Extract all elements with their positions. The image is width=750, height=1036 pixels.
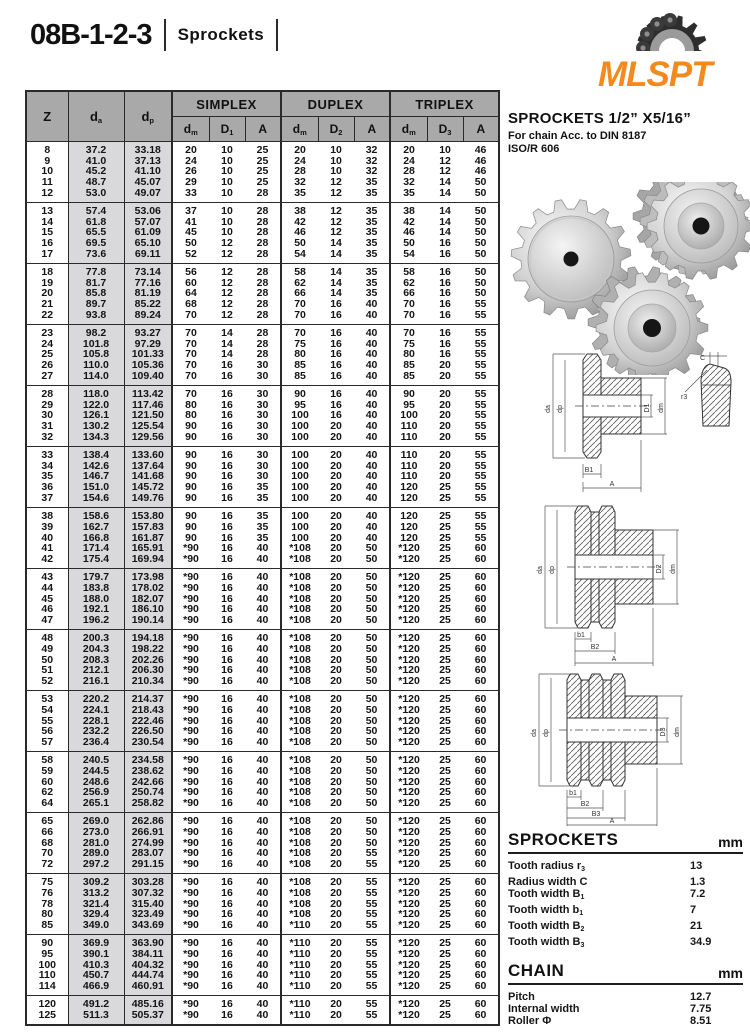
svg-text:da: da: [537, 566, 544, 574]
table-row: 54224.1218.43*901640*1082050*1202560: [26, 705, 499, 716]
svg-text:dm: dm: [670, 564, 677, 574]
table-row: 70289.0283.07*901640*1082055*1202560: [26, 848, 499, 859]
subcol-header: A: [354, 117, 390, 142]
svg-text:da: da: [531, 729, 538, 737]
brand-logo: MLSPT: [596, 4, 748, 92]
table-row: 66273.0266.91*901640*1082050*1202560: [26, 827, 499, 838]
subcol-header: D1: [209, 117, 245, 142]
table-row: 1669.565.10501228501435501650: [26, 238, 499, 249]
table-row: 1253.049.07331028351235351450: [26, 188, 499, 203]
table-row: 120491.2485.16*901640*1102055*1202560: [26, 996, 499, 1010]
table-row: 40166.8161.8790163510020401202555: [26, 533, 499, 544]
spec-row: Internal width7.75: [508, 1003, 743, 1015]
table-row: 62256.9250.74*901640*1082050*1202560: [26, 787, 499, 798]
table-row: 1565.561.09451028461235461450: [26, 227, 499, 238]
table-row: 29122.0117.46801630951640952055: [26, 400, 499, 411]
spec-row: Tooth width B221: [508, 920, 743, 936]
photo-triplex-sprocket: [633, 182, 750, 279]
chain-spec-rows: Pitch12.7Internal width7.75Roller Φ8.51: [508, 991, 743, 1027]
table-row: 1773.669.11521228541435541650: [26, 249, 499, 264]
group-header-simplex: SIMPLEX: [172, 91, 281, 117]
subcol-header: dm: [390, 117, 427, 142]
sprockets-spec-unit: mm: [718, 834, 743, 850]
table-row: 114466.9460.91*901640*1102055*1202560: [26, 981, 499, 996]
spec-row: Radius width C1.3: [508, 876, 743, 888]
svg-text:dm: dm: [674, 727, 681, 737]
chain-spec-header: CHAIN mm: [508, 961, 743, 985]
title-divider: [164, 19, 166, 51]
svg-text:B1: B1: [585, 467, 594, 474]
subcol-header: D2: [318, 117, 354, 142]
table-row: 45188.0182.07*901640*1082050*1202560: [26, 594, 499, 605]
simplex-drawing: da dp D1 dm B1 A C r3: [505, 352, 750, 494]
table-row: 100410.3404.32*901640*1102055*1202560: [26, 960, 499, 971]
catalog-page: 08B-1-2-3 Sprockets MLSPT: [0, 0, 750, 1036]
svg-text:B3: B3: [592, 811, 601, 818]
table-row: 110450.7444.74*901640*1102055*1202560: [26, 970, 499, 981]
table-row: 47196.2190.14*901640*1082050*1202560: [26, 615, 499, 630]
table-row: 65269.0262.86*901640*1082050*1202560: [26, 813, 499, 827]
subcol-header: dm: [172, 117, 209, 142]
title-divider: [276, 19, 278, 51]
svg-text:A: A: [612, 656, 617, 663]
table-row: 44183.8178.02*901640*1082050*1202560: [26, 583, 499, 594]
table-row: 78321.4315.40*901640*1082055*1202560: [26, 899, 499, 910]
table-row: 125511.3505.37*901640*1102055*1202560: [26, 1010, 499, 1025]
svg-text:A: A: [610, 481, 615, 488]
svg-text:r3: r3: [681, 394, 687, 401]
table-row: 80329.4323.49*901640*1082055*1202560: [26, 909, 499, 920]
spec-row: Tooth radius r313: [508, 860, 743, 876]
table-row: 56232.2226.50*901640*1082050*1202560: [26, 726, 499, 737]
table-row: 837.233.18201025201032201046: [26, 142, 499, 156]
table-row: 95390.1384.11*901640*1102055*1202560: [26, 949, 499, 960]
spec-row: Tooth width B17.2: [508, 888, 743, 904]
header-row-1: ZdadpSIMPLEXDUPLEXTRIPLEX: [26, 91, 499, 117]
table-row: 2085.881.19641228661435661650: [26, 288, 499, 299]
col-da-header: da: [68, 91, 124, 142]
spec-row: Pitch12.7: [508, 991, 743, 1003]
table-row: 1461.857.07411028421235421450: [26, 217, 499, 228]
col-dp-header: dp: [124, 91, 172, 142]
table-row: 48200.3194.18*901640*1082050*1202560: [26, 630, 499, 644]
table-row: 33138.4133.6090163010020401102055: [26, 447, 499, 461]
table-row: 58240.5234.58*901640*1082050*1202560: [26, 752, 499, 766]
subcol-header: A: [463, 117, 499, 142]
subcol-header: A: [245, 117, 281, 142]
table-row: 1357.453.06371028381235381450: [26, 203, 499, 217]
table-row: 51212.1206.30*901640*1082050*1202560: [26, 665, 499, 676]
table-row: 60248.6242.66*901640*1082050*1202560: [26, 777, 499, 788]
table-row: 53220.2214.37*901640*1082050*1202560: [26, 691, 499, 705]
table-row: 31130.2125.5490163010020401102055: [26, 421, 499, 432]
table-row: 35146.7141.6890163010020401102055: [26, 471, 499, 482]
table-row: 59244.5238.62*901640*1082050*1202560: [26, 766, 499, 777]
table-row: 24101.897.29701428751640751655: [26, 339, 499, 350]
table-head: ZdadpSIMPLEXDUPLEXTRIPLEX dmD1AdmD2AdmD3…: [26, 91, 499, 142]
sprocket-dimension-table: ZdadpSIMPLEXDUPLEXTRIPLEX dmD1AdmD2AdmD3…: [25, 90, 500, 1026]
table-row: 1877.873.14561228581435581650: [26, 264, 499, 278]
table-row: 76313.2307.32*901640*1082055*1202560: [26, 888, 499, 899]
table-row: 2293.889.24701228701640701655: [26, 310, 499, 325]
product-subtitle-1: For chain Acc. to DIN 8187: [508, 130, 748, 142]
table-row: 39162.7157.8390163510020401202555: [26, 522, 499, 533]
table-row: 1148.745.07291025321235321450: [26, 177, 499, 188]
table-row: 37154.6149.7690163510020401202555: [26, 493, 499, 508]
table-row: 1045.241.10261025281032281246: [26, 166, 499, 177]
page-subtitle: Sprockets: [178, 25, 265, 45]
table-row: 49204.3198.22*901640*1082050*1202560: [26, 644, 499, 655]
product-title: SPROCKETS 1/2” X5/16”: [508, 110, 748, 127]
table-row: 941.037.13241025241032241246: [26, 156, 499, 167]
sprocket-photo: [503, 182, 750, 375]
sprockets-spec-header: SPROCKETS mm: [508, 830, 743, 854]
col-z-header: Z: [26, 91, 68, 142]
table-row: 85349.0343.69*901640*1102055*1202560: [26, 920, 499, 935]
product-subtitle-2: ISO/R 606: [508, 143, 748, 155]
group-header-duplex: DUPLEX: [281, 91, 390, 117]
table-row: 25105.8101.33701428801640801655: [26, 349, 499, 360]
svg-text:dp: dp: [543, 729, 550, 737]
table-row: 32134.3129.5690163010020401102055: [26, 432, 499, 447]
table-row: 90369.9363.90*901640*1102055*1202560: [26, 935, 499, 949]
svg-text:C: C: [700, 355, 705, 362]
table-row: 30126.1121.5080163010016401002055: [26, 410, 499, 421]
table-row: 46192.1186.10*901640*1082050*1202560: [26, 604, 499, 615]
table-row: 50208.3202.26*901640*1082050*1202560: [26, 655, 499, 666]
table-row: 36151.0145.7290163510020401202555: [26, 482, 499, 493]
svg-text:D2: D2: [656, 564, 663, 573]
triplex-drawing: da dp D3 dm b1 B2 B3 A: [505, 668, 750, 828]
table-row: 43179.7173.98*901640*1082050*1202560: [26, 569, 499, 583]
spec-row: Tooth width b17: [508, 904, 743, 920]
svg-text:dm: dm: [658, 403, 665, 413]
table-row: 38158.6153.8090163510020401202555: [26, 508, 499, 522]
table-row: 42175.4169.94*901640*1082050*1202560: [26, 554, 499, 569]
tooth-profile-detail: C r3: [681, 352, 731, 426]
table-row: 72297.2291.15*901640*1082055*1202560: [26, 859, 499, 874]
spec-row: Roller Φ8.51: [508, 1015, 743, 1027]
page-header: 08B-1-2-3 Sprockets: [30, 16, 278, 54]
product-heading: SPROCKETS 1/2” X5/16” For chain Acc. to …: [508, 110, 748, 155]
page-title: 08B-1-2-3: [30, 19, 152, 52]
subcol-header: dm: [281, 117, 318, 142]
table-row: 28118.0113.42701630901640902055: [26, 386, 499, 400]
sprockets-spec-title: SPROCKETS: [508, 830, 618, 850]
table-row: 1981.777.16601228621435621650: [26, 278, 499, 289]
svg-text:D1: D1: [644, 403, 651, 412]
duplex-drawing: da dp D2 dm b1 B2 A: [505, 500, 750, 668]
table-row: 57236.4230.54*901640*1082050*1202560: [26, 737, 499, 752]
table-row: 2189.785.22681228701640701655: [26, 299, 499, 310]
table-row: 27114.0109.40701630851640852055: [26, 371, 499, 386]
spec-row: Tooth width B334.9: [508, 936, 743, 952]
svg-text:dp: dp: [557, 405, 564, 413]
svg-text:da: da: [545, 405, 552, 413]
table-row: 2398.293.27701428701640701655: [26, 325, 499, 339]
chain-spec-unit: mm: [718, 965, 743, 981]
table-row: 64265.1258.82*901640*1082050*1202560: [26, 798, 499, 813]
chain-spec-title: CHAIN: [508, 961, 564, 981]
svg-text:B2: B2: [581, 801, 590, 808]
svg-text:D3: D3: [660, 727, 667, 736]
subcol-header: D3: [427, 117, 463, 142]
svg-text:dp: dp: [549, 566, 556, 574]
svg-text:b1: b1: [577, 632, 585, 639]
logo-text: MLSPT: [598, 55, 715, 92]
svg-text:B2: B2: [591, 644, 600, 651]
table-row: 34142.6137.6490163010020401102055: [26, 461, 499, 472]
sprockets-spec-rows: Tooth radius r313Radius width C1.3Tooth …: [508, 860, 743, 953]
table-row: 41171.4165.91*901640*1082050*1202560: [26, 543, 499, 554]
svg-text:A: A: [610, 818, 615, 825]
svg-text:b1: b1: [569, 790, 577, 797]
table-row: 26110.0105.36701630851640852055: [26, 360, 499, 371]
table-row: 55228.1222.46*901640*1082050*1202560: [26, 716, 499, 727]
spec-section: SPROCKETS mm Tooth radius r313Radius wid…: [508, 828, 743, 1036]
table-row: 75309.2303.28*901640*1082055*1202560: [26, 874, 499, 888]
table-row: 68281.0274.99*901640*1082050*1202560: [26, 838, 499, 849]
group-header-triplex: TRIPLEX: [390, 91, 499, 117]
table-row: 52216.1210.34*901640*1082050*1202560: [26, 676, 499, 691]
